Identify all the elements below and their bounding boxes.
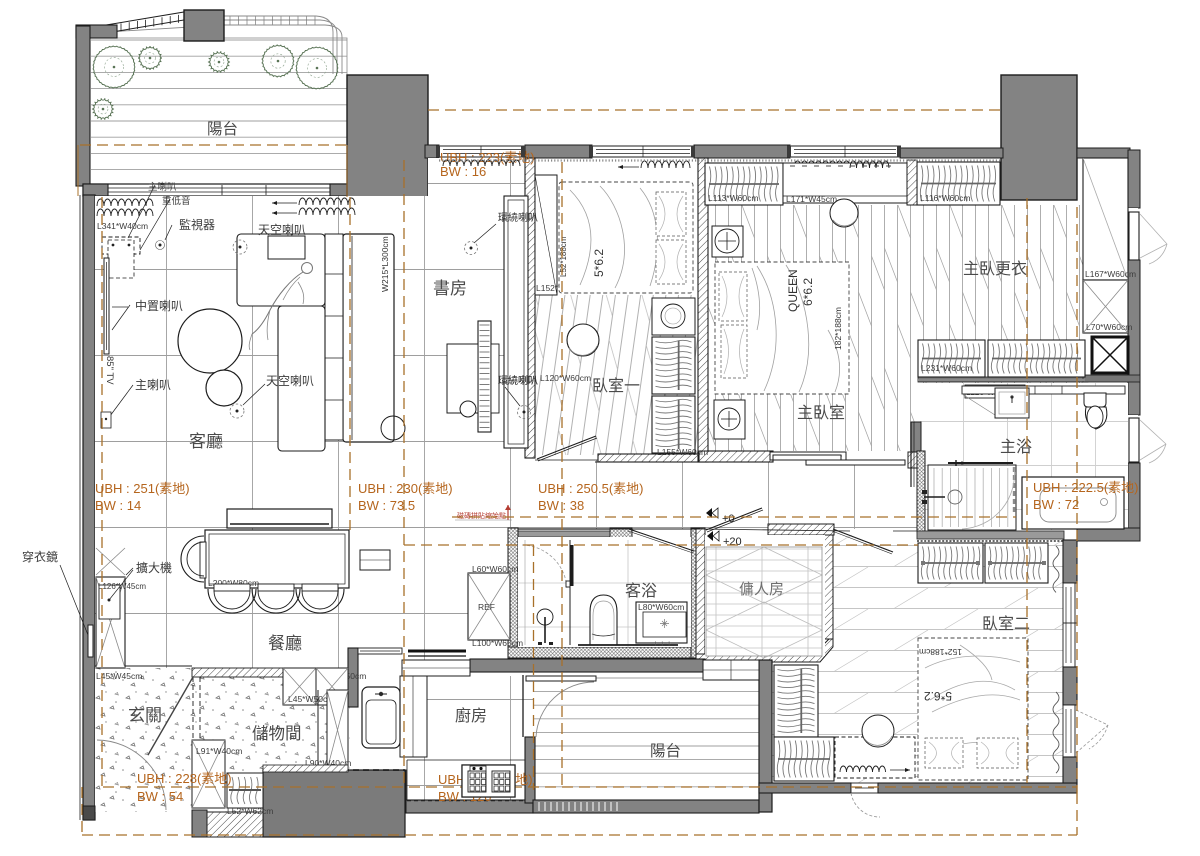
- svg-text:85" TV: 85" TV: [104, 356, 115, 385]
- svg-text:擴大機: 擴大機: [136, 560, 172, 575]
- svg-text:UBH : 222.5(素地): UBH : 222.5(素地): [1033, 480, 1138, 495]
- svg-text:L100*W60cm: L100*W60cm: [472, 638, 523, 648]
- svg-text:BW : 54: BW : 54: [137, 789, 183, 804]
- svg-text:主臥室: 主臥室: [797, 404, 845, 422]
- svg-text:玄關: 玄關: [128, 706, 162, 725]
- svg-text:UBH : 228(素地): UBH : 228(素地): [137, 771, 232, 786]
- svg-text:傭人房: 傭人房: [739, 580, 784, 598]
- svg-text:L91*W40cm: L91*W40cm: [196, 746, 242, 756]
- svg-text:L113*W60cm: L113*W60cm: [708, 193, 758, 203]
- svg-text:5*6.2: 5*6.2: [592, 249, 606, 277]
- svg-text:L45*W45cm: L45*W45cm: [96, 671, 142, 681]
- svg-text:餐廳: 餐廳: [268, 634, 302, 653]
- svg-text:BW : 72: BW : 72: [1033, 497, 1079, 512]
- svg-text:182*188cm: 182*188cm: [833, 307, 843, 350]
- svg-text:5*6.2: 5*6.2: [924, 689, 952, 703]
- svg-text:L231*W60cm: L231*W60cm: [921, 363, 972, 373]
- svg-text:臥室二: 臥室二: [982, 615, 1030, 633]
- svg-text:天空喇叭: 天空喇叭: [258, 222, 306, 237]
- svg-text:L167*W60cm: L167*W60cm: [1085, 269, 1136, 279]
- svg-text:+20: +20: [723, 536, 742, 548]
- svg-text:L155*W60cm: L155*W60cm: [657, 447, 708, 457]
- svg-text:L120*W60cm: L120*W60cm: [540, 373, 591, 383]
- svg-text:環繞喇叭: 環繞喇叭: [498, 374, 538, 387]
- svg-text:REF: REF: [478, 602, 495, 612]
- svg-text:主喇叭: 主喇叭: [135, 377, 171, 392]
- svg-text:L116*W60cm: L116*W60cm: [920, 193, 970, 203]
- svg-text:UBH : 223(素地): UBH : 223(素地): [440, 150, 535, 165]
- svg-text:磁磚拼貼縮始點: 磁磚拼貼縮始點: [457, 511, 506, 520]
- svg-text:L80*W60cm: L80*W60cm: [638, 602, 684, 612]
- svg-text:UBH : 250.5(素地): UBH : 250.5(素地): [538, 481, 643, 496]
- svg-text:QUEEN: QUEEN: [786, 269, 800, 312]
- svg-text:監視器: 監視器: [179, 217, 215, 232]
- svg-text:主臥更衣: 主臥更衣: [963, 260, 1027, 278]
- svg-text:穿衣鏡: 穿衣鏡: [22, 549, 58, 564]
- svg-text:L60*W60cm: L60*W60cm: [472, 564, 518, 574]
- svg-text:L52*W62cm: L52*W62cm: [227, 806, 273, 816]
- svg-text:BW : 16: BW : 16: [440, 164, 486, 179]
- svg-text:UBH : 251(素地): UBH : 251(素地): [95, 481, 190, 496]
- svg-text:UBH : 230(素地): UBH : 230(素地): [358, 481, 453, 496]
- svg-text:陽台: 陽台: [207, 120, 238, 138]
- svg-text:客廳: 客廳: [189, 432, 223, 451]
- svg-text:L70*W60cm: L70*W60cm: [1086, 322, 1132, 332]
- svg-text:6*6.2: 6*6.2: [801, 278, 815, 306]
- svg-text:陽台: 陽台: [650, 742, 681, 760]
- svg-text:天空喇叭: 天空喇叭: [266, 373, 314, 388]
- svg-text:W215*L300cm: W215*L300cm: [380, 236, 390, 292]
- svg-text:書房: 書房: [433, 279, 467, 298]
- svg-text:中置喇叭: 中置喇叭: [135, 298, 183, 313]
- svg-text:BW : 38: BW : 38: [538, 498, 584, 513]
- svg-text:152*188cm: 152*188cm: [919, 647, 962, 657]
- svg-text:L52*188cm: L52*188cm: [559, 236, 568, 277]
- svg-text:客浴: 客浴: [625, 582, 657, 600]
- svg-text:儲物間: 儲物間: [252, 724, 302, 743]
- svg-text:主喇叭: 主喇叭: [148, 181, 177, 193]
- svg-text:L171*W45cm: L171*W45cm: [786, 194, 837, 204]
- svg-text:+0: +0: [722, 513, 735, 525]
- svg-text:+ + +: + + +: [653, 639, 672, 648]
- svg-text:臥室一: 臥室一: [592, 377, 640, 395]
- svg-text:廚房: 廚房: [455, 706, 487, 725]
- svg-text:L341*W40cm: L341*W40cm: [97, 221, 148, 231]
- svg-text:BW : 14: BW : 14: [95, 498, 141, 513]
- svg-text:BW : 73.5: BW : 73.5: [358, 498, 415, 513]
- svg-text:環繞喇叭: 環繞喇叭: [498, 211, 538, 224]
